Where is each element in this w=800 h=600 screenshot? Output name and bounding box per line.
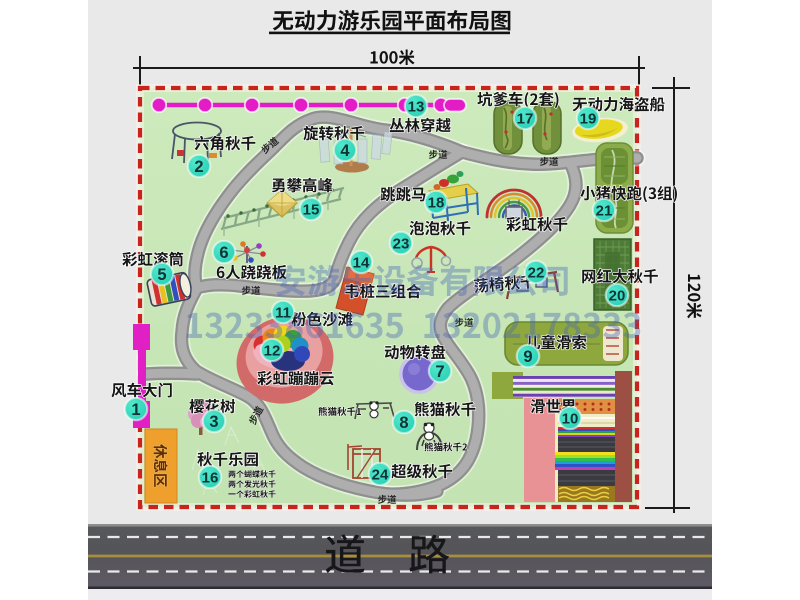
svg-text:3: 3 (209, 413, 218, 431)
svg-text:18: 18 (428, 194, 445, 211)
svg-text:24: 24 (372, 466, 389, 483)
svg-text:6: 6 (219, 244, 228, 262)
svg-text:12: 12 (264, 342, 281, 359)
svg-text:8: 8 (399, 414, 408, 432)
svg-text:9: 9 (523, 348, 532, 366)
svg-text:21: 21 (596, 202, 613, 219)
svg-text:10: 10 (562, 410, 579, 427)
svg-text:16: 16 (202, 469, 219, 486)
svg-text:17: 17 (517, 110, 534, 127)
svg-text:13: 13 (408, 98, 425, 115)
svg-text:15: 15 (303, 201, 320, 218)
svg-text:2: 2 (194, 158, 203, 176)
svg-text:22: 22 (528, 264, 545, 281)
svg-text:1: 1 (131, 401, 140, 419)
svg-text:20: 20 (609, 287, 626, 304)
svg-text:5: 5 (157, 266, 166, 284)
svg-text:14: 14 (353, 254, 370, 271)
svg-text:11: 11 (275, 304, 291, 321)
svg-text:19: 19 (580, 110, 597, 127)
svg-text:4: 4 (340, 142, 350, 160)
svg-text:7: 7 (435, 363, 444, 381)
svg-text:23: 23 (393, 235, 410, 252)
